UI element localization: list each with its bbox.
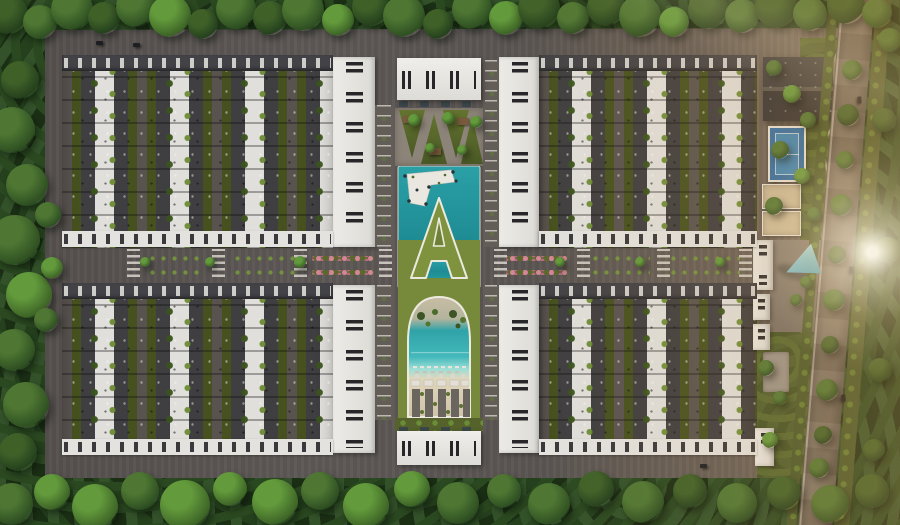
tree-canopy [487,474,521,508]
aerial-masterplan-rendering [0,0,900,525]
tree-canopy [0,483,33,525]
tree-canopy [0,215,40,265]
tree-canopy [868,358,892,382]
clubhouse-south [397,431,481,465]
rowcap-upper-right-south [539,231,757,247]
tree-canopy [855,474,889,508]
housing-block-lower-right [539,283,757,455]
sand-court-1 [762,184,801,209]
housing-block-upper-right [539,55,757,248]
rowcap-lower-left-north [62,283,333,299]
tree-canopy [6,164,48,206]
rowcap-upper-left-north [62,55,333,71]
housing-block-lower-left [62,283,333,455]
pool-and-lagoon-graphic [395,166,483,420]
triangle-garden [395,108,483,166]
rowcap-lower-left-south [62,439,333,455]
tree-canopy [518,0,560,29]
slab-building-lower-right [499,285,539,453]
rowcap-lower-right-south [539,439,757,455]
tree-canopy [282,0,324,31]
slab-building-upper-right [499,57,539,247]
tree-canopy [673,474,707,508]
tree-canopy [863,439,885,461]
tree-canopy [717,483,757,523]
pergola [457,118,469,125]
slab-building-lower-left [333,285,375,453]
parking-aisle-right-lower [483,285,499,420]
tree-canopy [622,481,664,523]
gatehouse-4 [755,428,774,466]
amenity-spine [395,55,483,467]
tree-canopy [72,484,118,525]
tree-canopy [252,479,298,525]
housing-block-upper-left [62,55,333,248]
playground-pad [763,352,789,392]
padel-court [768,126,806,182]
rowcap-lower-right-north [539,283,757,299]
pergola [429,148,441,155]
pergola [403,116,415,123]
tree-canopy [116,0,156,27]
clubhouse-north [397,58,481,100]
tree-canopy [452,0,492,29]
gatehouse-3 [753,324,770,350]
parking-aisle-left-upper [375,105,393,247]
tree-canopy [437,482,479,524]
tree-canopy [528,483,570,525]
parking-aisle-left-lower [375,285,393,420]
tree-canopy [51,0,93,30]
tree-canopy [3,382,49,428]
parking-aisle-right-upper [483,60,499,247]
tree-canopy [88,2,120,34]
tree-canopy [0,107,35,153]
tree-canopy [34,474,70,510]
tree-canopy [1,61,39,99]
tree-canopy [352,0,390,26]
tree-canopy [343,483,389,525]
tree-canopy [0,433,37,471]
tree-canopy [875,237,900,263]
sand-court-2 [762,211,801,236]
tree-canopy [0,0,28,34]
tree-canopy [216,0,256,29]
tree-canopy [0,329,35,371]
slab-building-upper-left [333,57,375,247]
entry-canopies-north [399,101,479,107]
rowcap-upper-left-south [62,231,333,247]
garden-triangle [421,114,447,164]
tree-canopy [160,480,210,525]
